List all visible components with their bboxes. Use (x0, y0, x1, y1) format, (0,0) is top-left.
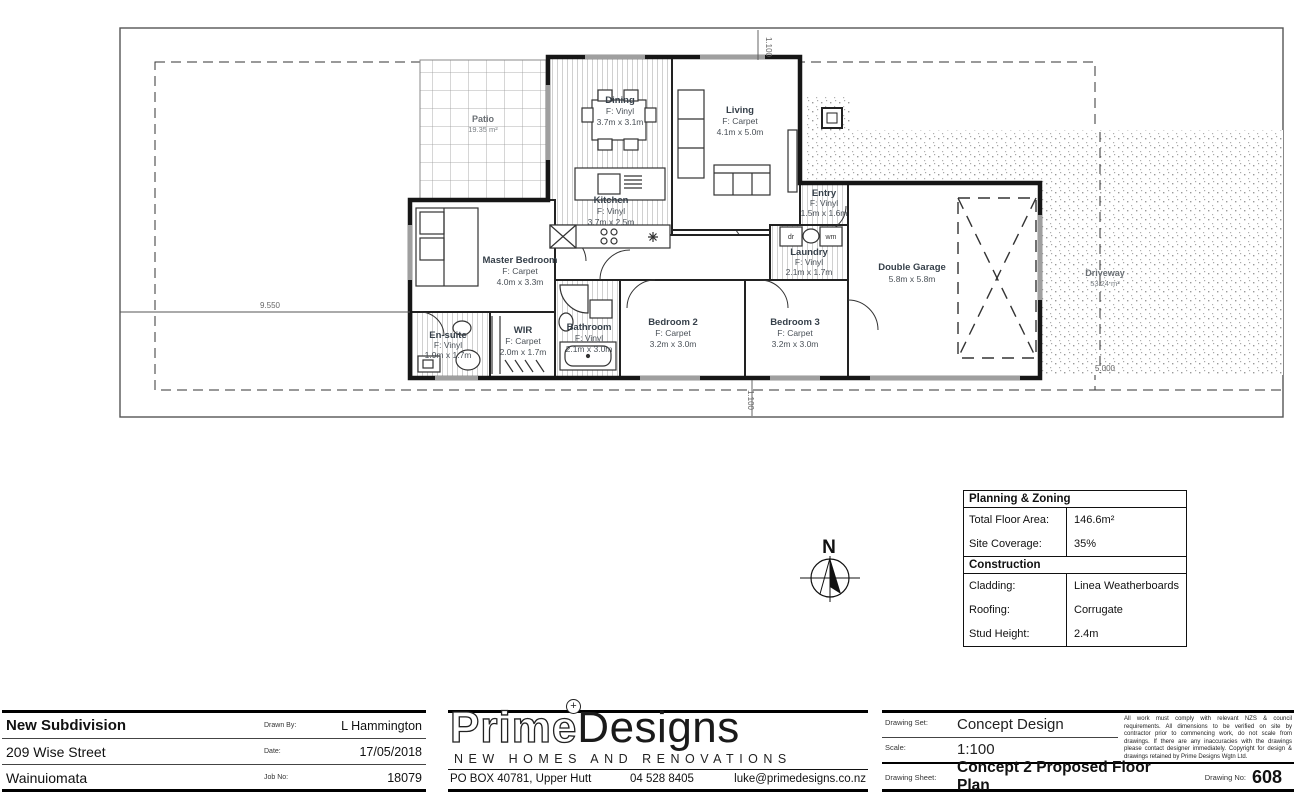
company-tagline: NEW HOMES AND RENOVATIONS (448, 750, 868, 769)
svg-text:Kitchen: Kitchen (594, 195, 629, 206)
disclaimer-text: All work must comply with relevant NZS &… (1118, 713, 1294, 762)
company-email[interactable]: luke@primedesigns.co.nz (734, 773, 866, 785)
svg-text:5.8m x 5.8m: 5.8m x 5.8m (889, 274, 936, 284)
svg-text:F: Carpet: F: Carpet (777, 328, 813, 338)
job-no-value: 18079 (322, 771, 422, 785)
patio: Patio 19.35 m² (420, 60, 546, 205)
project-row: New Subdivision Drawn By: L Hammington (2, 713, 426, 739)
planning-zoning-table: Planning & Zoning Total Floor Area: 146.… (963, 490, 1187, 647)
logo-plus-icon: + (566, 699, 581, 714)
north-arrow: N (800, 537, 860, 602)
svg-text:1.9m x 1.7m: 1.9m x 1.7m (425, 350, 472, 360)
company-phone: 04 528 8405 (630, 773, 734, 785)
svg-text:Driveway: Driveway (1085, 268, 1125, 278)
label-bedroom-3: Bedroom 3 F: Carpet 3.2m x 3.0m (770, 317, 820, 349)
label-bedroom-2: Bedroom 2 F: Carpet 3.2m x 3.0m (648, 317, 698, 349)
drawing-set-label: Drawing Set: (882, 713, 954, 738)
svg-text:F: Carpet: F: Carpet (502, 266, 538, 276)
svg-text:F: Carpet: F: Carpet (505, 336, 541, 346)
dim-top: 1.100 (764, 37, 773, 58)
drawn-by-label: Drawn By: (264, 722, 322, 729)
svg-text:53.24 m²: 53.24 m² (1090, 279, 1120, 288)
svg-text:3.7m x 2.5m: 3.7m x 2.5m (588, 217, 635, 227)
site-coverage-label: Site Coverage: (964, 532, 1066, 556)
project-suburb: Wainuiomata (6, 770, 264, 786)
site-coverage-value: 35% (1066, 532, 1186, 556)
dim-right: 5.000 (1095, 364, 1116, 373)
svg-text:F: Vinyl: F: Vinyl (575, 333, 603, 343)
patio-area: 19.35 m² (468, 125, 498, 134)
svg-text:2.0m x 1.7m: 2.0m x 1.7m (500, 347, 547, 357)
svg-text:2.1m x 1.7m: 2.1m x 1.7m (786, 267, 833, 277)
cladding-value: Linea Weatherboards (1066, 574, 1186, 598)
table-row: Site Coverage: 35% (964, 532, 1186, 556)
svg-text:Bedroom 2: Bedroom 2 (648, 317, 698, 328)
project-row: Wainuiomata Job No: 18079 (2, 765, 426, 790)
company-address: PO BOX 40781, Upper Hutt (450, 773, 630, 785)
project-name: New Subdivision (6, 717, 264, 734)
date-value: 17/05/2018 (322, 745, 422, 759)
company-contact: PO BOX 40781, Upper Hutt 04 528 8405 luk… (448, 769, 868, 789)
company-logo: Prime Designs + (448, 706, 868, 750)
construction-header: Construction (964, 556, 1186, 574)
svg-text:4.1m x 5.0m: 4.1m x 5.0m (717, 127, 764, 137)
table-row: Total Floor Area: 146.6m² (964, 508, 1186, 532)
dryer-label: dr (788, 234, 795, 241)
svg-text:3.2m x 3.0m: 3.2m x 3.0m (650, 339, 697, 349)
svg-text:1.5m x 1.6m: 1.5m x 1.6m (801, 208, 848, 218)
svg-text:Bathroom: Bathroom (567, 322, 612, 333)
washer-label: wm (825, 234, 837, 241)
cladding-label: Cladding: (964, 574, 1066, 598)
svg-text:F: Vinyl: F: Vinyl (606, 106, 634, 116)
svg-text:F: Vinyl: F: Vinyl (597, 206, 625, 216)
stud-height-value: 2.4m (1066, 622, 1186, 646)
svg-text:F: Vinyl: F: Vinyl (795, 257, 823, 267)
drawn-by-value: L Hammington (322, 719, 422, 733)
date-label: Date: (264, 748, 322, 755)
svg-text:F: Carpet: F: Carpet (722, 116, 758, 126)
stud-height-label: Stud Height: (964, 622, 1066, 646)
drawing-set-value: Concept Design (954, 713, 1118, 738)
svg-text:F: Carpet: F: Carpet (655, 328, 691, 338)
roofing-label: Roofing: (964, 598, 1066, 622)
svg-text:4.0m x 3.3m: 4.0m x 3.3m (497, 277, 544, 287)
dim-bottom: 1.100 (746, 390, 755, 411)
svg-text:N: N (822, 537, 836, 558)
table-row: Roofing: Corrugate (964, 598, 1186, 622)
svg-text:Dining: Dining (605, 95, 635, 106)
svg-text:Bedroom 3: Bedroom 3 (770, 317, 820, 328)
project-row: 209 Wise Street Date: 17/05/2018 (2, 739, 426, 765)
dim-left: 9.550 (260, 301, 281, 310)
drawing-sheet-label: Drawing Sheet: (882, 773, 957, 782)
drawing-no-value: 608 (1252, 767, 1294, 788)
svg-text:F: Vinyl: F: Vinyl (434, 340, 462, 350)
table-row: Cladding: Linea Weatherboards (964, 574, 1186, 598)
drawing-sheet-value: Concept 2 Proposed Floor Plan (957, 759, 1184, 795)
drawing-sheet-row: Drawing Sheet: Concept 2 Proposed Floor … (882, 762, 1294, 791)
total-floor-area-label: Total Floor Area: (964, 508, 1066, 532)
drawing-info-block: Drawing Set: Concept Design All work mus… (882, 710, 1294, 792)
drawing-no-label: Drawing No: (1184, 773, 1252, 782)
svg-text:F: Vinyl: F: Vinyl (810, 198, 838, 208)
scale-label: Scale: (882, 738, 954, 762)
total-floor-area-value: 146.6m² (1066, 508, 1186, 532)
patio-label: Patio (472, 114, 495, 124)
svg-text:Living: Living (726, 105, 754, 116)
logo-designs-text: Designs (577, 706, 739, 750)
svg-text:WIR: WIR (514, 325, 533, 336)
svg-text:2.1m x 3.0m: 2.1m x 3.0m (566, 344, 613, 354)
svg-text:3.7m x 3.1m: 3.7m x 3.1m (597, 117, 644, 127)
svg-text:Master Bedroom: Master Bedroom (483, 255, 558, 266)
job-no-label: Job No: (264, 774, 322, 781)
scale-value: 1:100 (954, 738, 1118, 762)
project-title-block: New Subdivision Drawn By: L Hammington 2… (2, 710, 426, 792)
svg-text:Double Garage: Double Garage (878, 262, 946, 273)
table-row: Stud Height: 2.4m (964, 622, 1186, 646)
roofing-value: Corrugate (1066, 598, 1186, 622)
company-block: Prime Designs + NEW HOMES AND RENOVATION… (448, 710, 868, 792)
planning-header: Planning & Zoning (964, 491, 1186, 508)
project-address: 209 Wise Street (6, 744, 264, 760)
logo-prime-text: Prime (450, 706, 577, 750)
svg-text:3.2m x 3.0m: 3.2m x 3.0m (772, 339, 819, 349)
